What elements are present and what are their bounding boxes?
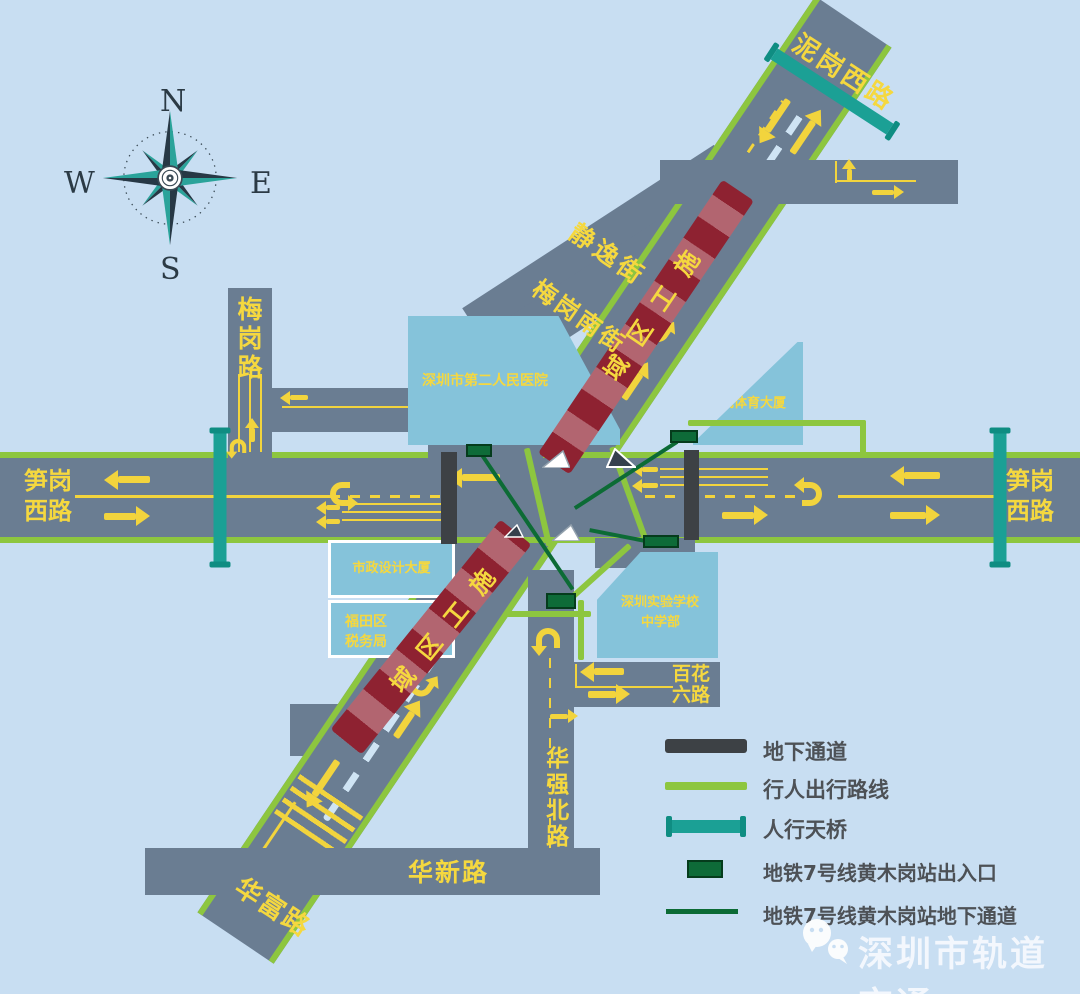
building-label: 福田区 xyxy=(345,613,387,632)
pedestrian-route xyxy=(860,420,866,456)
building-label: 税务局 xyxy=(345,633,387,652)
traffic-diversion-map: 深圳市第二人民医院 中成体育大厦 市政设计大厦 福田区 税务局 深圳实验学校 中… xyxy=(0,0,1080,994)
center-line xyxy=(838,495,1005,498)
underpass-bar-west xyxy=(441,452,457,544)
pedestrian-route xyxy=(578,600,584,660)
lane-arrow-right-icon xyxy=(104,506,150,526)
traffic-island xyxy=(504,524,524,538)
compass-south-label: S xyxy=(160,252,181,287)
lane-arrow-left-icon xyxy=(632,476,658,496)
center-line xyxy=(75,495,330,498)
lane-line xyxy=(342,519,442,521)
traffic-island xyxy=(542,450,570,468)
metro-entrance xyxy=(466,444,492,457)
lane-arrow-up-icon xyxy=(839,159,859,181)
road-label-line: 笋岗 xyxy=(24,466,72,496)
road-label-meigang: 梅岗路 xyxy=(233,296,263,383)
lane-line xyxy=(342,511,442,513)
compass-north-label: N xyxy=(160,84,186,119)
pedestrian-route xyxy=(688,420,866,426)
building-design-tower: 市政设计大厦 xyxy=(328,540,455,598)
legend-swatch-underpass xyxy=(665,739,747,753)
legend-swatch-bridge xyxy=(666,817,746,836)
legend-label: 地下通道 xyxy=(763,736,847,766)
lane-line xyxy=(660,484,768,486)
underpass-bar-east xyxy=(684,450,699,540)
wechat-icon xyxy=(800,918,856,970)
legend-label: 人行天桥 xyxy=(763,814,847,844)
building-label: 中学部 xyxy=(641,614,680,632)
watermark-text: 深圳市轨道交通 xyxy=(858,926,1080,994)
lane-line xyxy=(660,468,768,470)
lane-line xyxy=(575,664,577,688)
lane-arrow-up-icon xyxy=(242,418,262,442)
center-line-dashed xyxy=(645,495,803,498)
road-label-huaxin: 华新路 xyxy=(408,858,489,888)
legend-swatch-metro-passage xyxy=(666,909,738,914)
lane-arrow-right-icon xyxy=(550,706,578,726)
legend-label: 行人出行路线 xyxy=(763,774,889,804)
lane-arrow-right-icon xyxy=(872,182,904,202)
compass-star-icon xyxy=(100,108,240,248)
traffic-island xyxy=(552,524,580,541)
lane-line xyxy=(660,476,768,478)
metro-entrance xyxy=(643,535,679,548)
building-label: 中成体育大厦 xyxy=(708,395,786,413)
road-label-line: 西路 xyxy=(1006,496,1054,526)
road-label-huaqiang: 华强北路 xyxy=(540,746,568,850)
road-label-baihua: 百花 六路 xyxy=(672,664,710,706)
legend-label: 地铁7号线黄木岗站出入口 xyxy=(763,857,997,886)
building-label: 深圳市第二人民医院 xyxy=(422,372,548,391)
compass-east-label: E xyxy=(250,166,272,201)
road-nigang-branch xyxy=(660,160,958,204)
lane-arrow-right-icon xyxy=(890,505,940,525)
lane-arrow-right-icon xyxy=(588,684,630,704)
road-label-line: 笋岗 xyxy=(1006,466,1054,496)
pedestrian-bridge-west xyxy=(210,428,231,568)
metro-entrance xyxy=(670,430,698,443)
legend-swatch-entrance xyxy=(687,860,723,878)
lane-arrow-right-icon xyxy=(722,505,768,525)
road-label-line: 西路 xyxy=(24,496,72,526)
building-label: 深圳实验学校 xyxy=(621,594,699,612)
road-label-sungang-east-end: 笋岗 西路 xyxy=(1006,466,1054,526)
road-label-line: 百花 xyxy=(672,664,710,685)
road-label-sungang-west-end: 笋岗 西路 xyxy=(24,466,72,526)
building-sports-center: 中成体育大厦 xyxy=(693,342,803,445)
legend-swatch-route xyxy=(665,782,747,790)
compass-west-label: W xyxy=(64,166,95,201)
pedestrian-route xyxy=(505,611,591,617)
lane-arrow-left-icon xyxy=(280,388,308,408)
lane-arrow-left-icon xyxy=(890,466,940,486)
road-huaxin xyxy=(145,848,600,895)
compass-rose: N W E S xyxy=(60,70,290,290)
u-turn-arrow-icon xyxy=(230,439,247,453)
building-label: 市政设计大厦 xyxy=(352,560,430,578)
lane-line xyxy=(342,503,442,505)
traffic-island xyxy=(606,448,636,468)
u-turn-arrow-icon xyxy=(536,628,560,648)
lane-arrow-left-icon xyxy=(104,470,150,490)
metro-entrance xyxy=(546,593,576,609)
lane-arrow-left-icon xyxy=(580,662,624,682)
road-label-line: 六路 xyxy=(672,685,710,706)
lane-arrow-left-icon xyxy=(316,512,340,532)
